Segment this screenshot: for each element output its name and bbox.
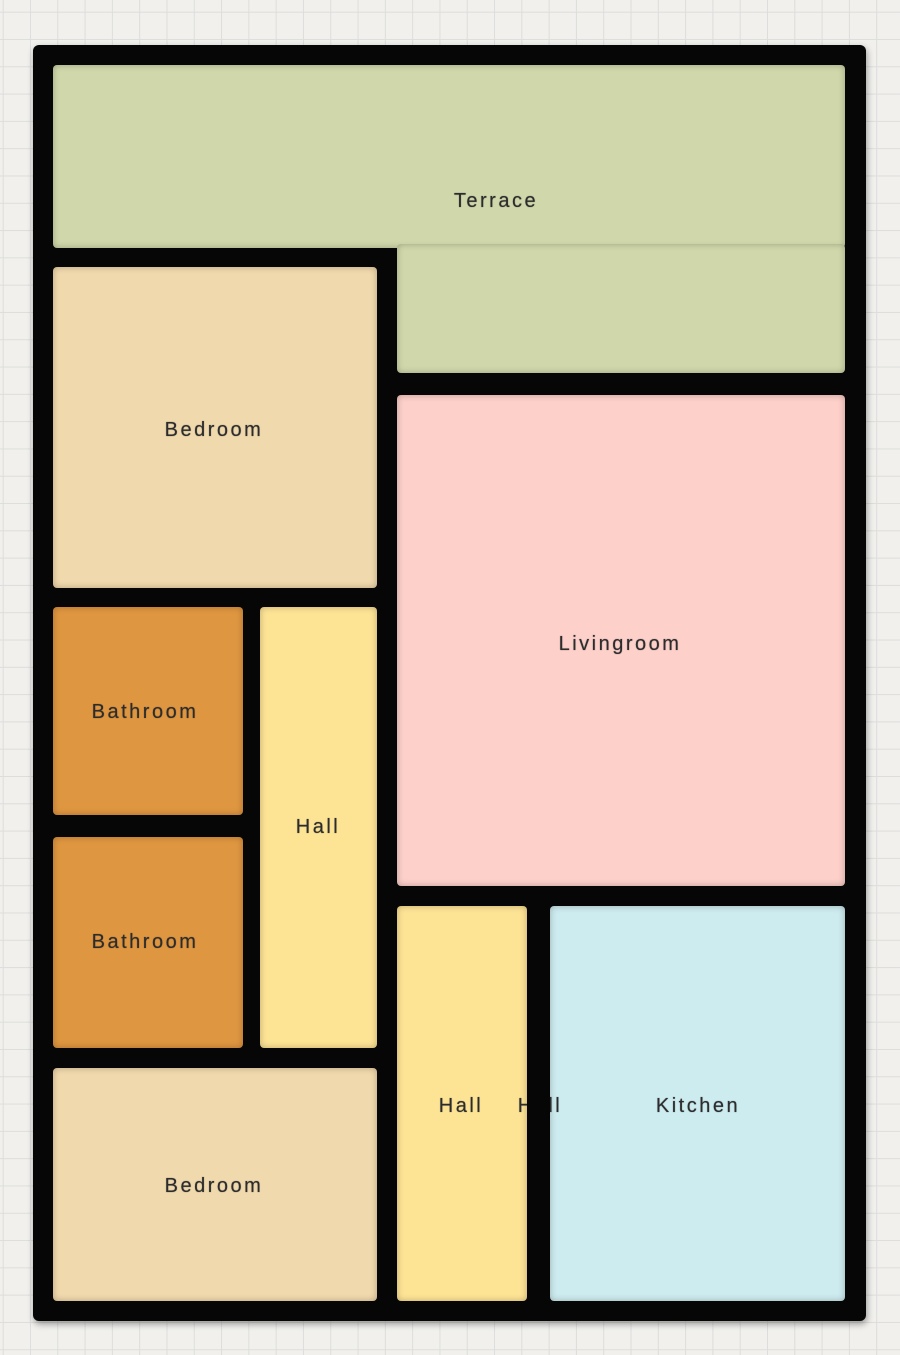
interior-wall xyxy=(527,906,550,1301)
room-label-hall-south: Hall xyxy=(439,1096,483,1116)
room-label-livingroom: Livingroom xyxy=(559,634,682,654)
room-label-kitchen: Kitchen xyxy=(656,1096,740,1116)
room-terrace[interactable] xyxy=(53,65,845,248)
room-label-terrace: Terrace xyxy=(454,191,538,211)
room-terrace[interactable] xyxy=(397,244,845,373)
room-label-hall-west: Hall xyxy=(296,817,340,837)
room-label-bathroom-upper: Bathroom xyxy=(92,702,199,722)
room-label-bedroom-top: Bedroom xyxy=(165,420,264,440)
floorplan-canvas: TerraceBedroomLivingroomBathroomBathroom… xyxy=(0,0,900,1355)
room-label-bathroom-lower: Bathroom xyxy=(92,932,199,952)
room-label-bedroom-bottom: Bedroom xyxy=(165,1176,264,1196)
